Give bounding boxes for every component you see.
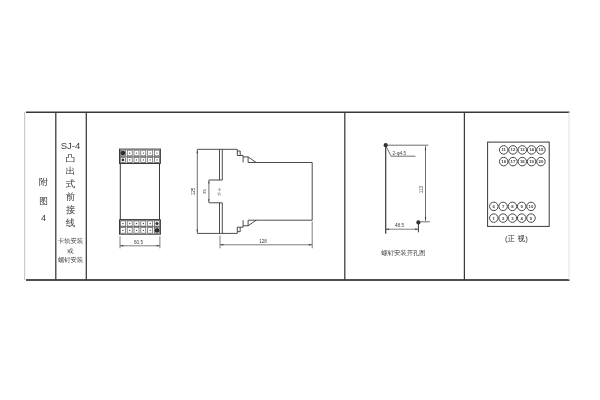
svg-text:前: 前 [66,191,76,202]
svg-text:12: 12 [511,147,516,152]
svg-text:轨: 轨 [217,192,222,196]
svg-text:螺钉安装: 螺钉安装 [58,256,84,264]
svg-text:14: 14 [529,147,534,152]
svg-text:128: 128 [259,239,267,244]
svg-text:18: 18 [520,159,525,164]
svg-text:4: 4 [521,216,524,221]
svg-text:13: 13 [520,147,525,152]
svg-text:17: 17 [511,159,516,164]
svg-text:SJ-4: SJ-4 [61,140,81,151]
svg-text:附: 附 [39,177,48,187]
svg-text:60.5: 60.5 [134,240,143,245]
svg-text:5: 5 [530,216,533,221]
svg-text:15: 15 [539,147,544,152]
svg-text:3: 3 [511,216,514,221]
svg-text:6: 6 [493,204,496,209]
svg-text:48.5: 48.5 [395,223,404,228]
svg-text:卡: 卡 [218,188,222,192]
svg-text:凸: 凸 [66,152,76,163]
svg-text:9: 9 [521,204,524,209]
svg-text:7: 7 [502,204,505,209]
svg-text:10: 10 [529,204,534,209]
svg-text:螺钉安装开孔图: 螺钉安装开孔图 [381,249,425,257]
svg-text:2: 2 [502,216,505,221]
svg-text:20: 20 [539,159,544,164]
svg-text:图: 图 [39,196,48,206]
svg-text:卡轨安装: 卡轨安装 [58,237,84,244]
svg-text:(正 视): (正 视) [505,234,528,243]
svg-text:式: 式 [66,178,76,189]
svg-text:35: 35 [202,189,207,194]
svg-text:11: 11 [501,147,506,152]
svg-text:4: 4 [41,213,46,223]
svg-text:8: 8 [511,204,514,209]
svg-text:线: 线 [66,217,76,228]
svg-text:16: 16 [501,159,506,164]
svg-text:125: 125 [191,187,196,195]
svg-text:2-φ4.5: 2-φ4.5 [393,151,407,156]
svg-text:1: 1 [493,216,496,221]
svg-text:出: 出 [66,165,76,176]
svg-text:接: 接 [66,204,76,215]
svg-text:19: 19 [529,159,534,164]
svg-text:或: 或 [67,247,73,254]
svg-text:113: 113 [419,185,424,193]
